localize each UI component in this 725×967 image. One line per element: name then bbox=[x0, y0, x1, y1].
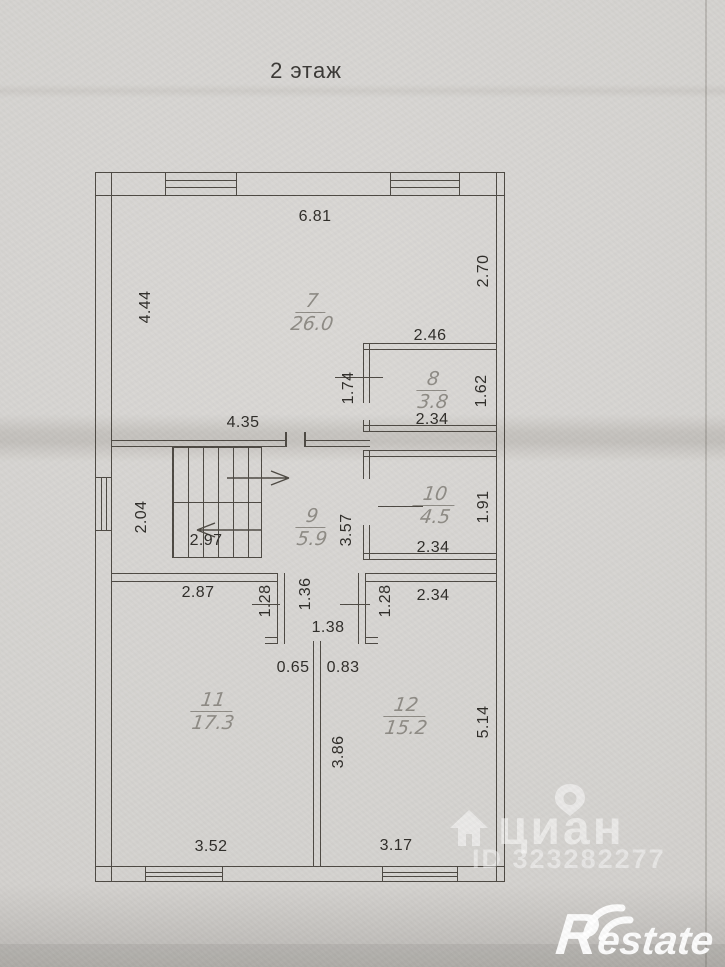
dim-hall-width: 1.38 bbox=[312, 619, 345, 637]
window-bottom-1 bbox=[145, 866, 223, 882]
room-area: 17.3 bbox=[190, 712, 235, 734]
dim-hall-left: 1.28 bbox=[257, 585, 275, 618]
wall-corridor-right bbox=[304, 440, 370, 447]
wall-outer-right bbox=[496, 172, 505, 882]
window-left bbox=[95, 477, 112, 531]
wall-hall-foot-right bbox=[365, 637, 378, 644]
room-number: 10 bbox=[412, 484, 457, 506]
wall-room10-top bbox=[363, 450, 496, 457]
wall-hall-left bbox=[277, 573, 285, 644]
window-top-2 bbox=[390, 172, 460, 196]
room-number: 9 bbox=[295, 506, 328, 528]
room-number: 7 bbox=[295, 291, 328, 313]
room-area: 26.0 bbox=[289, 313, 334, 335]
room-number: 8 bbox=[416, 369, 449, 391]
door-jamb-1 bbox=[285, 432, 287, 447]
dim-room7-right: 2.70 bbox=[475, 255, 493, 288]
dim-room11-bottom: 3.52 bbox=[195, 838, 228, 856]
leader-line bbox=[340, 604, 370, 605]
window-bottom-2 bbox=[382, 866, 458, 882]
stair-arrow-up-icon bbox=[225, 468, 305, 488]
dim-hall-right: 1.28 bbox=[377, 585, 395, 618]
dim-room9-right: 3.57 bbox=[338, 514, 356, 547]
dim-room10-bottom: 2.34 bbox=[417, 539, 450, 557]
dim-room7-left: 4.44 bbox=[137, 291, 155, 324]
paper-edge-line bbox=[705, 0, 707, 967]
window-top-1 bbox=[165, 172, 237, 196]
dim-room8-top: 2.46 bbox=[414, 327, 447, 345]
dim-room11-top: 2.87 bbox=[182, 584, 215, 602]
dim-stairs-width: 2.97 bbox=[190, 532, 223, 550]
dim-room12-top: 2.34 bbox=[417, 587, 450, 605]
room-number: 12 bbox=[383, 695, 428, 717]
dim-opening-left: 0.65 bbox=[277, 659, 310, 677]
dim-room8-bottom: 2.34 bbox=[416, 411, 449, 429]
dim-room10-right: 1.91 bbox=[475, 491, 493, 524]
cian-watermark-id: ID 323282277 bbox=[472, 844, 666, 875]
dim-room11-divider: 3.86 bbox=[330, 736, 348, 769]
dim-hall-height: 1.36 bbox=[297, 578, 315, 611]
wall-room12-top bbox=[365, 573, 496, 582]
room-area: 15.2 bbox=[383, 717, 428, 739]
room-label-10: 10 4.5 bbox=[414, 484, 456, 528]
room-label-11: 11 17.3 bbox=[192, 690, 234, 734]
dim-room12-bottom: 3.17 bbox=[380, 837, 413, 855]
dim-opening-right: 0.83 bbox=[327, 659, 360, 677]
wall-room10-left-upper bbox=[363, 450, 370, 479]
wall-hall-foot-left bbox=[265, 637, 278, 644]
wall-room8-left-upper bbox=[363, 343, 370, 403]
dim-room8-left: 1.74 bbox=[340, 372, 358, 405]
dim-corridor-top: 4.35 bbox=[227, 414, 260, 432]
door-jamb-2 bbox=[304, 432, 306, 447]
room-number: 11 bbox=[190, 690, 235, 712]
room-area: 4.5 bbox=[418, 506, 451, 528]
room-label-12: 12 15.2 bbox=[385, 695, 427, 739]
wall-divider-11-12 bbox=[313, 641, 321, 866]
wall-corridor-left bbox=[112, 440, 286, 447]
floor-title: 2 этаж bbox=[270, 58, 342, 84]
dim-room8-right: 1.62 bbox=[473, 375, 491, 408]
floor-plan-scan: 2 этаж 6.81 4.44 2.70 2.46 1.74 bbox=[0, 0, 725, 967]
room-label-9: 9 5.9 bbox=[297, 506, 327, 550]
dim-room12-right: 5.14 bbox=[475, 706, 493, 739]
dim-room7-top: 6.81 bbox=[299, 208, 332, 226]
room-area: 5.9 bbox=[295, 528, 328, 550]
wall-room11-top bbox=[112, 573, 278, 582]
restate-watermark-text: Restate bbox=[553, 912, 716, 964]
room-label-7: 7 26.0 bbox=[291, 291, 333, 335]
dim-landing-left: 2.04 bbox=[133, 501, 151, 534]
wall-hall-right bbox=[358, 573, 366, 644]
scan-crease-top bbox=[0, 84, 725, 98]
room-area: 3.8 bbox=[416, 391, 449, 413]
room-label-8: 8 3.8 bbox=[418, 369, 448, 413]
